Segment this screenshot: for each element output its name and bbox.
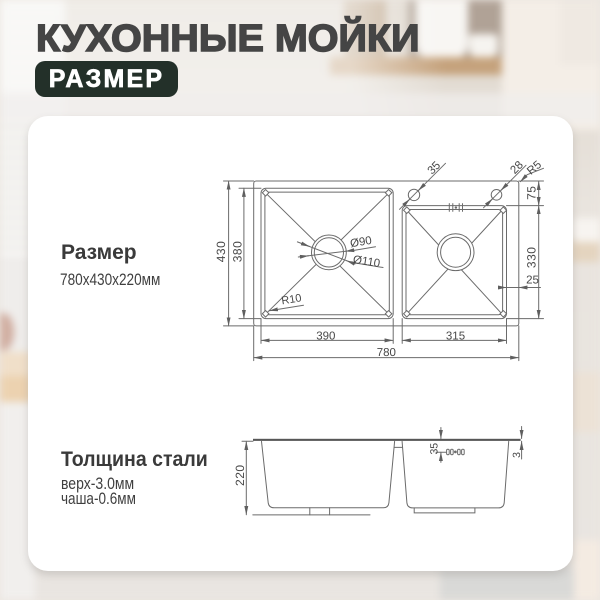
- svg-text:3: 3: [511, 452, 523, 458]
- svg-text:390: 390: [316, 330, 335, 342]
- svg-text:35: 35: [426, 160, 444, 178]
- svg-text:28: 28: [508, 159, 526, 177]
- svg-text:35: 35: [429, 443, 441, 455]
- svg-text:25: 25: [526, 275, 539, 287]
- svg-text:75: 75: [525, 186, 539, 200]
- svg-text:220: 220: [233, 464, 247, 486]
- svg-text:330: 330: [525, 247, 539, 269]
- svg-text:315: 315: [446, 330, 465, 342]
- svg-text:780: 780: [377, 347, 396, 359]
- svg-text:380: 380: [231, 241, 245, 263]
- svg-text:430: 430: [214, 241, 228, 263]
